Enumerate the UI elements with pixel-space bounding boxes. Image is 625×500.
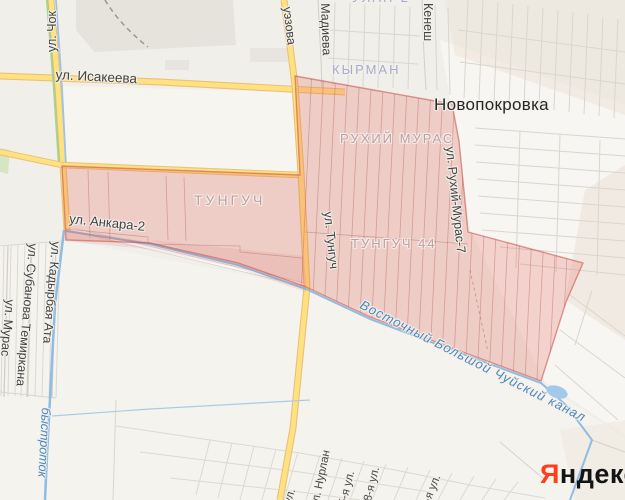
district-label-tunguch-44: ТУНГУЧ 44 [351,237,437,250]
town-label-novopokrovka[interactable]: Новопокровка [434,96,549,113]
street-label-chok: ул. Чок [46,11,59,52]
district-label-tunguch: ТУНГУЧ [194,193,265,207]
yandex-logo[interactable]: Яндекс [540,459,625,490]
map-canvas[interactable]: УЛАН-2 ул. Чок уэзова Мадиева Кенеш ул. … [0,0,625,500]
district-label-kyrman: КЫРМАН [332,63,401,76]
district-label-ruhij-muras: РУХИЙ МУРАС [340,132,454,145]
water-label-bystrotok: быстроток [36,407,52,477]
street-label-partial: ул. [283,487,299,500]
yandex-logo-ya: Я [540,459,560,489]
street-label-kenesh: Кенеш [422,3,435,41]
street-label-madieva: Мадиева [319,3,333,56]
district-label-ulan-2: УЛАН-2 [352,0,410,4]
yandex-logo-rest: ндекс [560,459,625,489]
